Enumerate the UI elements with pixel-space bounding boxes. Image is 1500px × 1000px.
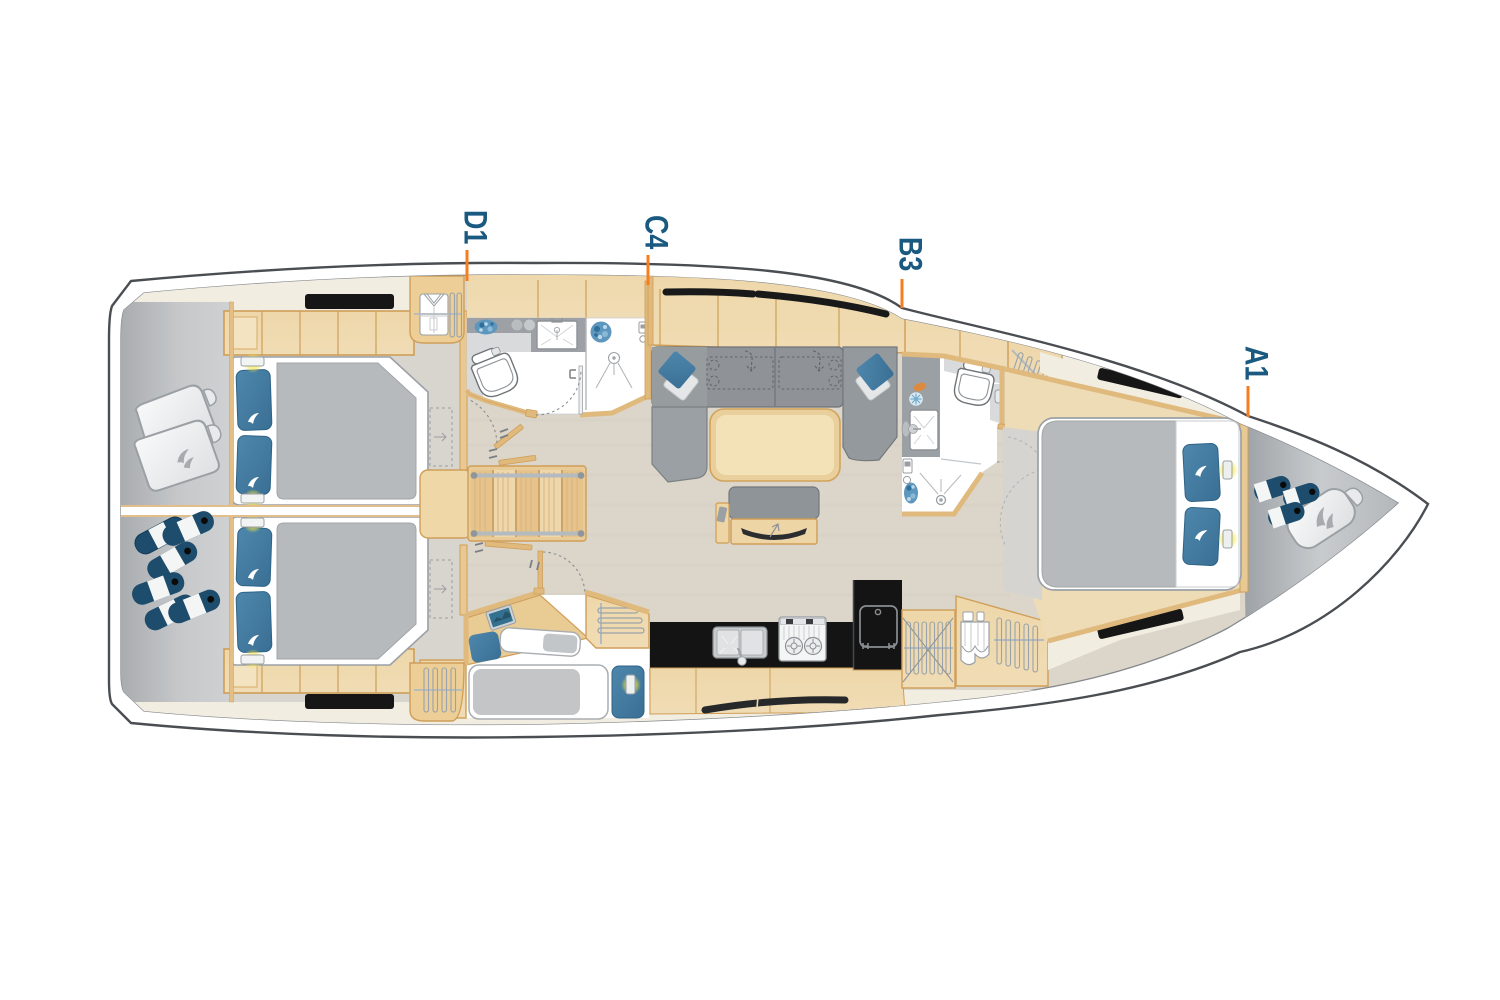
svg-text:B3: B3 [892,237,928,271]
svg-text:A1: A1 [1238,346,1274,380]
svg-text:C4: C4 [638,215,674,250]
svg-text:D1: D1 [457,210,493,244]
